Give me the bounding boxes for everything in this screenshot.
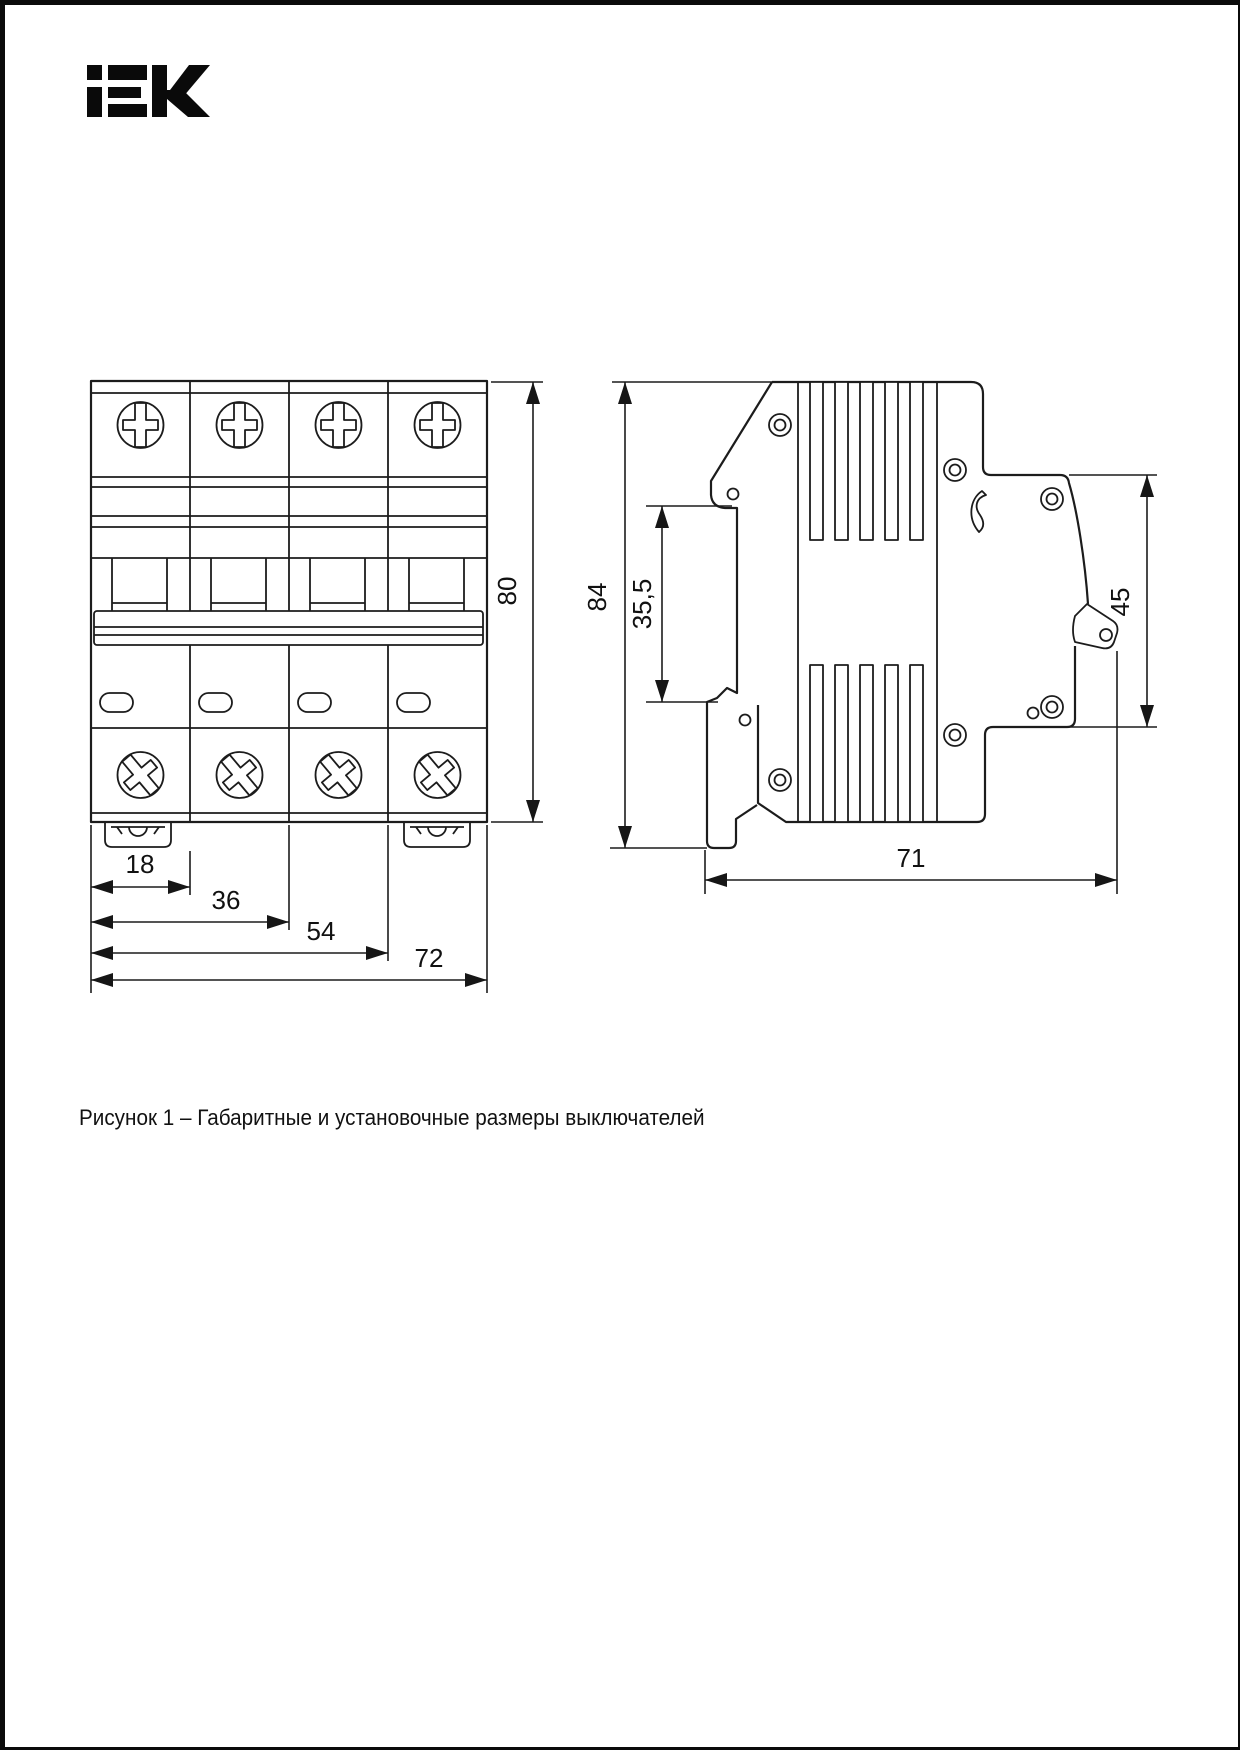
front-module-dividers bbox=[190, 381, 388, 822]
label-windows bbox=[100, 693, 430, 712]
screw-top-1 bbox=[118, 402, 164, 448]
screw-bottom-2 bbox=[212, 747, 267, 803]
vent-slots-bottom bbox=[810, 665, 923, 822]
side-view: 84 35,5 45 bbox=[582, 382, 1157, 894]
side-rail-profile bbox=[707, 382, 772, 848]
dim-label-72: 72 bbox=[415, 943, 444, 973]
dim-label-35-5: 35,5 bbox=[627, 579, 657, 630]
screw-top-3 bbox=[316, 402, 362, 448]
dim-label-71: 71 bbox=[897, 843, 926, 873]
screw-top-2 bbox=[217, 402, 263, 448]
dim-side-height: 84 bbox=[582, 382, 772, 848]
technical-drawing: 80 18 bbox=[5, 5, 1240, 1750]
screw-bottom-1 bbox=[113, 747, 168, 803]
rivet bbox=[769, 414, 791, 436]
dim-front-face-height: 45 bbox=[1067, 475, 1157, 727]
pin-hole bbox=[740, 715, 751, 726]
tie-bar bbox=[94, 611, 483, 645]
vent-panel bbox=[798, 382, 937, 822]
rivet bbox=[944, 724, 966, 746]
pin-hole bbox=[1028, 708, 1039, 719]
document-page: iEK bbox=[0, 0, 1240, 1750]
dim-rail-recess: 35,5 bbox=[627, 506, 732, 702]
din-clip-right bbox=[404, 822, 470, 847]
figure-caption: Рисунок 1 – Габаритные и установочные ра… bbox=[79, 1105, 705, 1131]
rivet bbox=[1041, 488, 1063, 510]
dim-module-width: 18 bbox=[91, 849, 190, 894]
dim-label-36: 36 bbox=[212, 885, 241, 915]
front-view: 80 18 bbox=[91, 381, 543, 993]
dim-label-84: 84 bbox=[582, 583, 612, 612]
din-clip-left bbox=[105, 822, 171, 847]
dim-front-widths: 18 36 54 72 bbox=[91, 825, 487, 993]
screw-bottom-3 bbox=[311, 747, 366, 803]
vent-slots-top bbox=[810, 382, 923, 540]
dim-front-height: 80 bbox=[491, 382, 543, 822]
curved-slot bbox=[971, 491, 986, 532]
toggle-handles bbox=[112, 558, 464, 611]
pin-hole bbox=[728, 489, 739, 500]
rivet bbox=[1041, 696, 1063, 718]
dim-label-45: 45 bbox=[1105, 588, 1135, 617]
dim-label-54: 54 bbox=[307, 916, 336, 946]
rivet bbox=[944, 459, 966, 481]
screw-top-4 bbox=[415, 402, 461, 448]
dim-label-18: 18 bbox=[126, 849, 155, 879]
screw-bottom-4 bbox=[410, 747, 465, 803]
rivet bbox=[769, 769, 791, 791]
dim-total-width: 72 bbox=[91, 943, 487, 987]
dim-label-80: 80 bbox=[492, 577, 522, 606]
